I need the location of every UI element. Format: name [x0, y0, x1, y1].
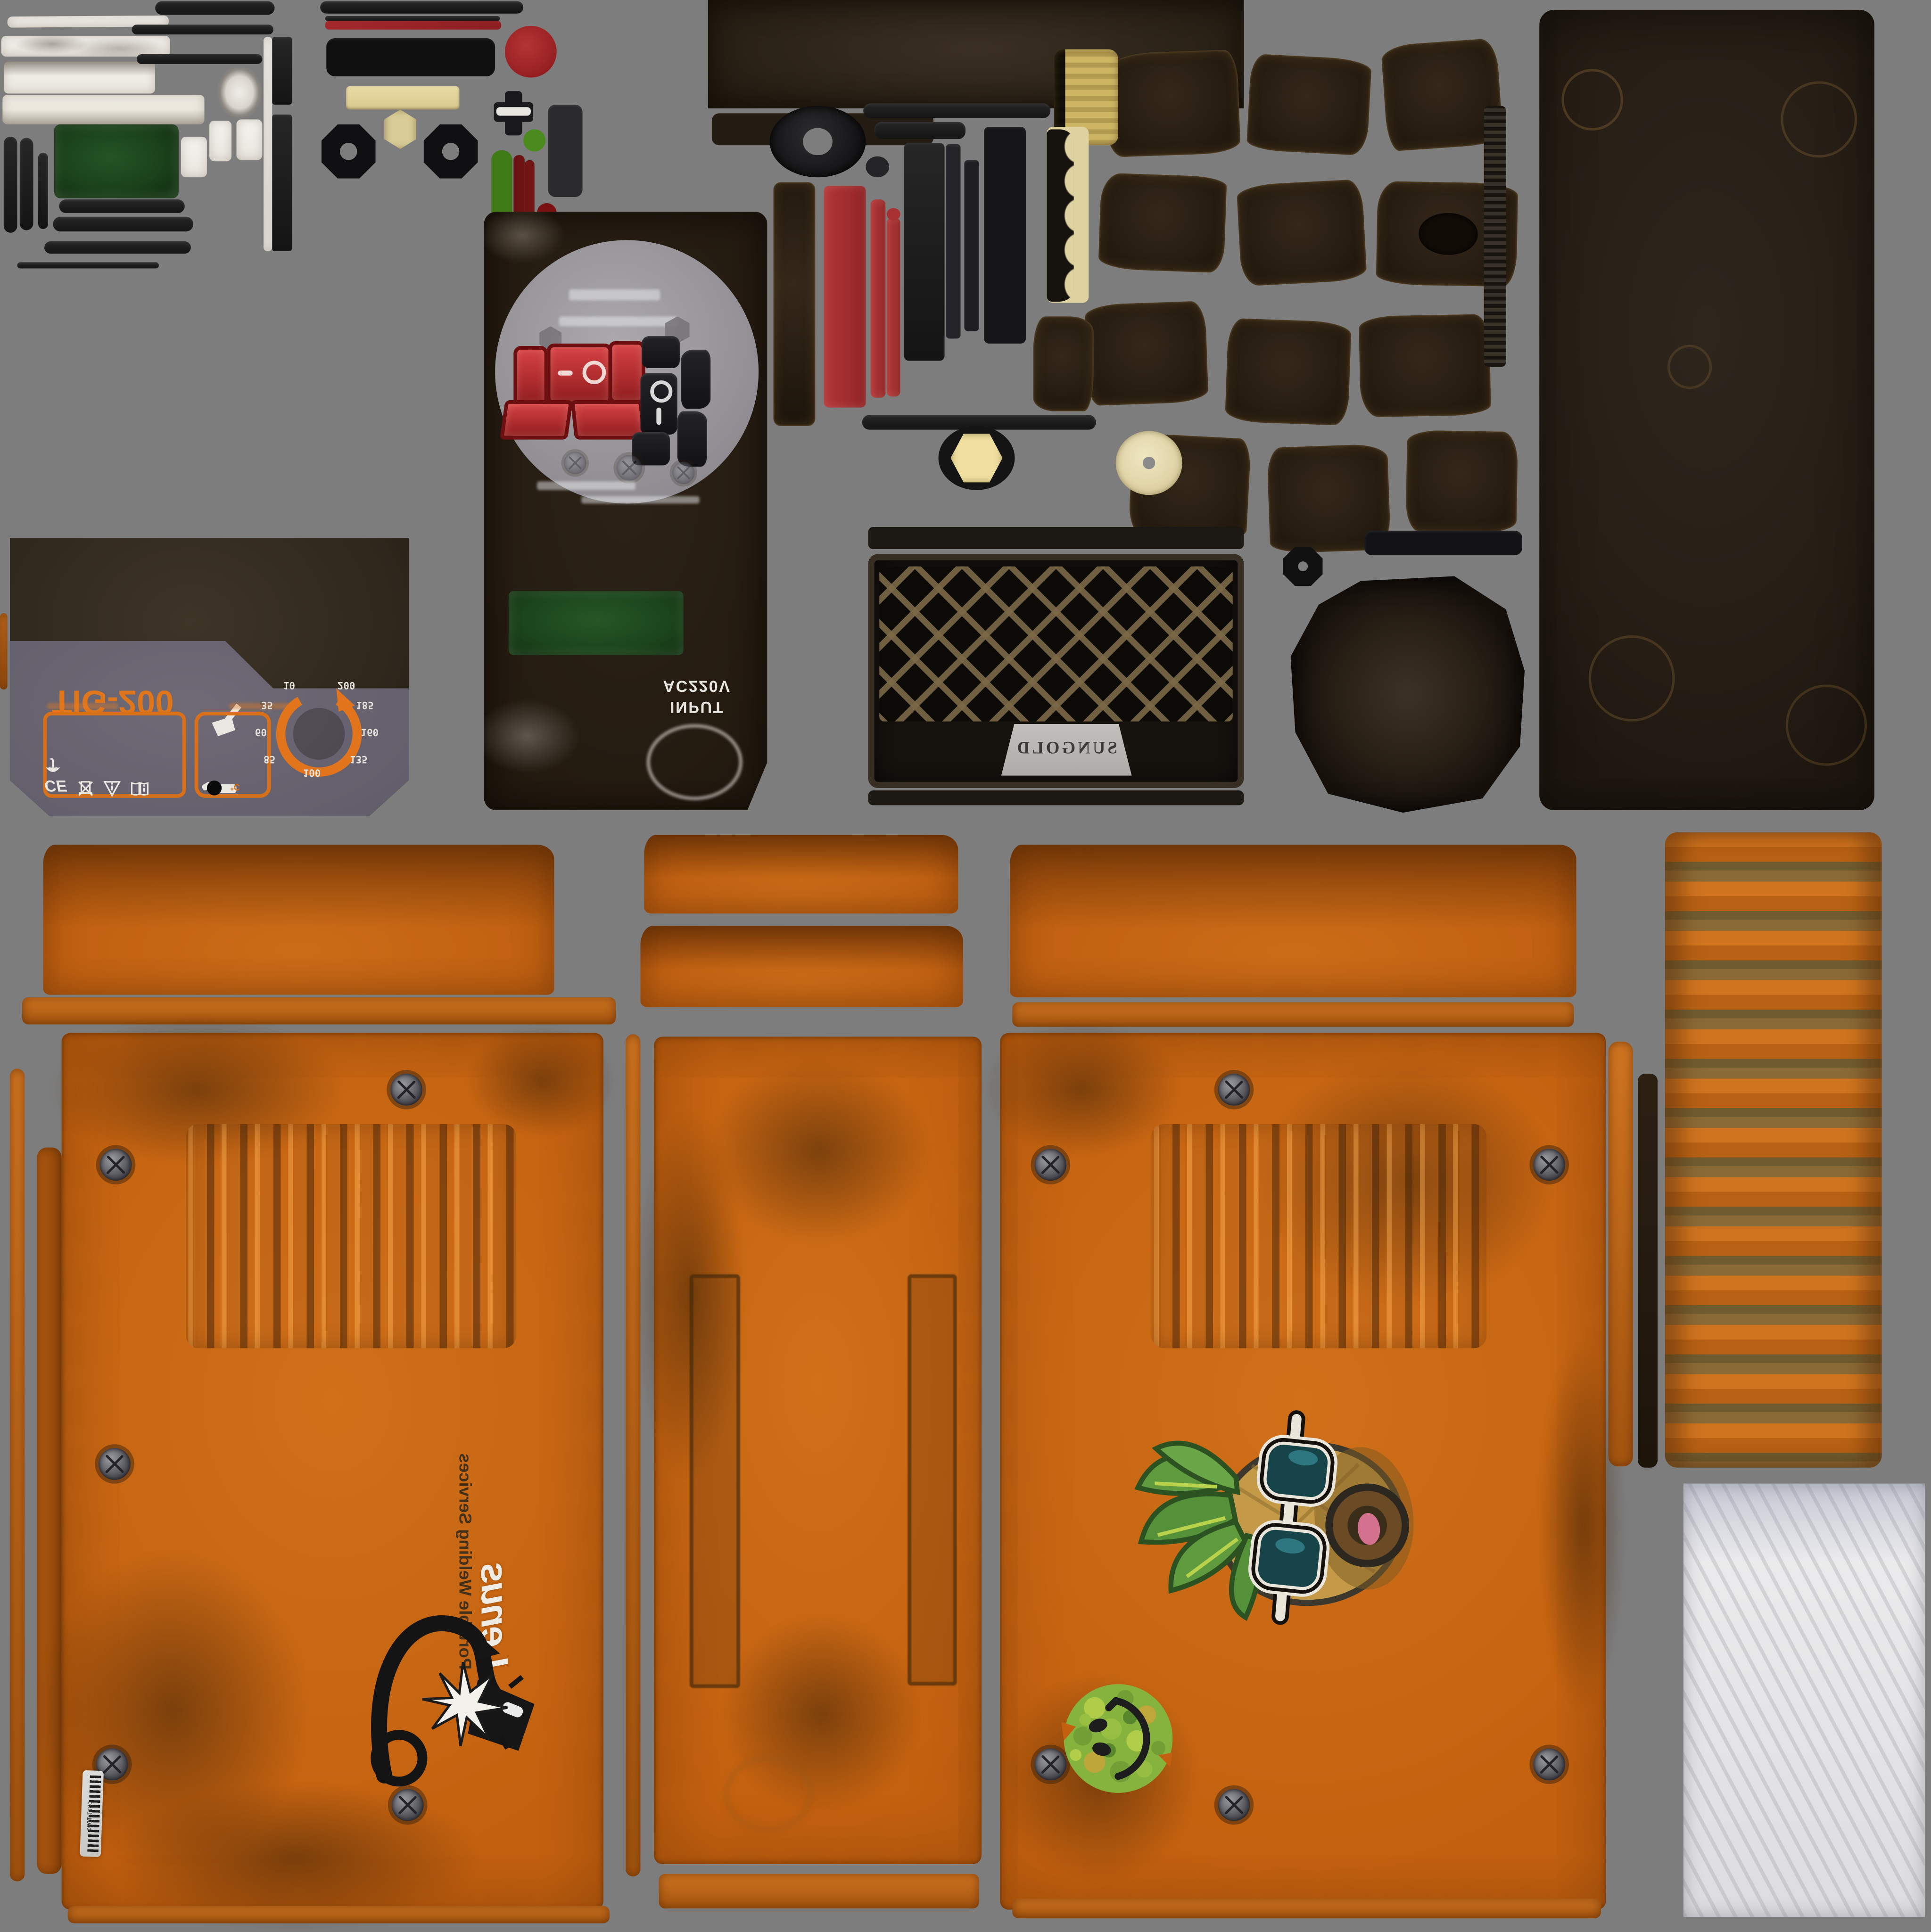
certification-row: CE	[44, 774, 157, 797]
orange-flap	[644, 835, 958, 913]
side-panel-middle	[654, 1037, 982, 1864]
red-rocker-cap	[513, 346, 548, 408]
orange-flap	[1010, 845, 1576, 997]
rocker-circle-mark	[650, 380, 672, 403]
green-paint-daub	[491, 150, 512, 222]
faint-label-row	[47, 703, 118, 709]
scalloped-seal-strip	[1047, 129, 1073, 302]
corrugated-hose-strip	[1665, 832, 1882, 1468]
black-bar	[137, 54, 262, 64]
screw	[1533, 1149, 1565, 1181]
recess-slot	[690, 1274, 740, 1688]
rubber-washer	[770, 106, 866, 178]
screw	[1034, 1149, 1066, 1181]
rocker-dash-mark	[558, 370, 572, 375]
rust-ring	[1589, 635, 1675, 722]
large-dark-panel	[1539, 10, 1874, 810]
black-bar	[132, 25, 273, 34]
octagon-gasket	[1291, 576, 1525, 813]
grille-bottom-strip	[868, 790, 1244, 805]
black-block	[272, 37, 292, 105]
leather-patch	[1098, 173, 1227, 273]
red-plank	[824, 186, 866, 407]
black-rocker-cap	[640, 373, 677, 435]
white-scrap	[237, 119, 263, 160]
red-rocker-cap	[608, 341, 645, 404]
vent-ribs	[1151, 1124, 1486, 1348]
red-disc	[505, 26, 557, 78]
faint-screw	[672, 461, 695, 484]
keep-dry-umbrella-icon	[44, 757, 62, 775]
white-scrap	[181, 137, 207, 177]
black-bar	[320, 1, 523, 14]
black-block	[272, 115, 292, 251]
pineapple-mouth	[1325, 1483, 1409, 1567]
recess-slot	[908, 1274, 957, 1685]
knob-hole	[340, 143, 357, 160]
orange-strip	[68, 1906, 610, 1924]
dial-label: 135	[350, 754, 368, 765]
dark-brown-block	[773, 182, 815, 426]
leather-patch	[1104, 49, 1241, 157]
black-bar	[155, 1, 274, 15]
faint-print-row	[569, 289, 660, 301]
knob-hole	[442, 143, 460, 160]
rust-blotch	[983, 1021, 1180, 1156]
faint-print-row	[581, 496, 700, 504]
washer-hole	[1143, 457, 1155, 469]
pineapple-sunglasses-sticker	[1112, 1395, 1433, 1661]
green-screen	[509, 591, 684, 655]
red-rocker-side	[500, 400, 573, 440]
orange-strip	[659, 1874, 979, 1908]
white-fuzzy-disc	[217, 65, 263, 119]
grille-brand-label: SUNGOLD	[1015, 740, 1117, 760]
brass-plate	[346, 86, 459, 110]
red-plank-thin	[887, 218, 900, 396]
orange-flap	[43, 845, 554, 995]
black-rocker-side	[677, 411, 707, 467]
tig-front-panel-piece: TIG-200 10 35 60 85 100 135 160 185 200 …	[10, 538, 409, 816]
switch-cap-tray	[495, 240, 759, 503]
io-labels: INPUT AC220V	[629, 677, 765, 717]
faint-print-row	[537, 481, 635, 490]
black-rocker-side	[681, 350, 711, 409]
voltage-label: AC220V	[629, 677, 765, 696]
patch-hole	[1419, 213, 1478, 255]
leather-patch	[1225, 318, 1352, 426]
red-trim-strip	[325, 21, 502, 29]
screw	[392, 1789, 424, 1821]
white-strip-vertical	[264, 37, 272, 251]
nut-hole	[1298, 561, 1308, 572]
white-grunge-strip	[1, 36, 170, 57]
orange-sliver	[0, 613, 8, 690]
rust-blotch	[708, 1059, 930, 1244]
grille-mesh	[879, 567, 1233, 722]
screw	[1218, 1789, 1250, 1821]
black-bar	[1364, 531, 1522, 555]
io-panel-piece: INPUT AC220V	[484, 212, 767, 810]
cream-washer	[1116, 431, 1182, 495]
white-grunge-strip	[2, 95, 204, 124]
leather-patch	[1246, 54, 1372, 156]
black-bar	[38, 153, 48, 229]
dial-label: 160	[361, 726, 379, 738]
screw	[99, 1448, 131, 1480]
inter-panel-strip	[626, 1034, 640, 1876]
camo-smiley-sticker	[1059, 1679, 1178, 1798]
dial-label: 100	[303, 767, 321, 778]
black-rocker-cap	[642, 336, 680, 368]
orange-flap	[640, 926, 963, 1007]
white-grunge-strip	[4, 62, 155, 94]
barcode-sticker: 0501-1490	[80, 1770, 104, 1857]
black-plate	[326, 38, 495, 76]
side-panel-left: Lenus Portable Welding Services 0501-149…	[62, 1033, 603, 1910]
leather-patch	[1405, 430, 1518, 533]
rocker-line-mark	[656, 408, 661, 425]
hex-bolt	[939, 426, 1015, 490]
overheat-led	[207, 781, 222, 795]
black-bar	[20, 138, 33, 230]
rocker-circle-mark	[583, 361, 606, 384]
grille-badge: SUNGOLD	[1001, 724, 1132, 776]
dial-label: 10	[283, 680, 295, 691]
black-plank-thin	[946, 144, 960, 339]
black-bar	[59, 199, 184, 213]
grille-top-strip	[868, 527, 1244, 549]
black-bar	[44, 241, 191, 254]
black-plank	[984, 127, 1026, 344]
leather-patch	[1236, 179, 1367, 287]
rust-ring	[1781, 81, 1857, 157]
weee-bin-icon	[77, 780, 93, 797]
black-bar	[875, 122, 965, 140]
white-grunge-sheet	[1683, 1484, 1925, 1917]
dial-label: 60	[255, 726, 267, 738]
side-panel-right	[1000, 1033, 1606, 1910]
worn-smudge	[474, 699, 580, 773]
screw	[1218, 1074, 1250, 1106]
red-rocker-cap-main	[547, 344, 612, 405]
fan-grille: SUNGOLD	[868, 554, 1244, 788]
dial-label: 200	[338, 680, 355, 691]
dial-label: 35	[261, 699, 273, 711]
warning-triangle-icon	[103, 780, 121, 797]
orange-edge-strip	[1609, 1042, 1633, 1466]
hex-bolt-head	[950, 434, 1002, 482]
leather-patch	[1359, 314, 1491, 417]
worn-corner-light	[479, 207, 565, 263]
orange-strip	[22, 997, 616, 1024]
black-bar	[53, 217, 193, 231]
screw	[1533, 1748, 1565, 1780]
washer-hole	[803, 128, 832, 156]
dial-label: 85	[264, 754, 275, 765]
dark-edge-strip	[1638, 1074, 1658, 1468]
faint-print-row	[559, 316, 677, 326]
black-oval	[866, 156, 889, 177]
black-bar	[325, 16, 500, 21]
red-plank-thin	[871, 199, 885, 398]
red-blob	[887, 208, 900, 220]
texture-atlas-sheet: SUNGOLD TIG-200	[0, 0, 1931, 1931]
welding-torch-illustration	[362, 1591, 547, 1790]
threaded-rod	[1484, 106, 1506, 367]
brass-hexagon	[384, 109, 416, 149]
green-dot	[523, 129, 545, 151]
rust-ring	[1786, 684, 1867, 765]
screw	[100, 1149, 132, 1181]
black-plank	[904, 143, 944, 361]
black-bar	[863, 103, 1050, 118]
leather-patch	[1084, 301, 1208, 406]
faint-screw	[564, 452, 586, 474]
white-scrap	[209, 121, 231, 161]
black-bar	[17, 262, 159, 268]
rust-blotch	[468, 1026, 616, 1136]
ghost-ring	[724, 1756, 813, 1832]
hex-nut-black	[1283, 547, 1323, 586]
vent-ribs	[186, 1124, 516, 1348]
leather-scrap	[1033, 316, 1094, 411]
rust-ring	[1667, 345, 1712, 389]
dark-block	[548, 105, 582, 197]
rust-ring	[1561, 69, 1623, 131]
worn-circle-outline	[646, 724, 743, 800]
input-label: INPUT	[629, 698, 765, 716]
orange-edge-strip	[10, 1069, 25, 1881]
manual-book-icon	[131, 781, 149, 797]
green-display-plate	[54, 124, 179, 198]
dial-label: 185	[356, 699, 374, 711]
orange-strip	[1012, 1899, 1601, 1918]
black-plank-thin	[964, 160, 979, 331]
screw	[390, 1074, 422, 1106]
cross-bracket-label	[496, 107, 531, 115]
ce-mark: CE	[44, 777, 66, 795]
faint-screw	[617, 455, 642, 480]
black-bar	[4, 137, 17, 233]
temp-label: °C	[230, 782, 240, 790]
